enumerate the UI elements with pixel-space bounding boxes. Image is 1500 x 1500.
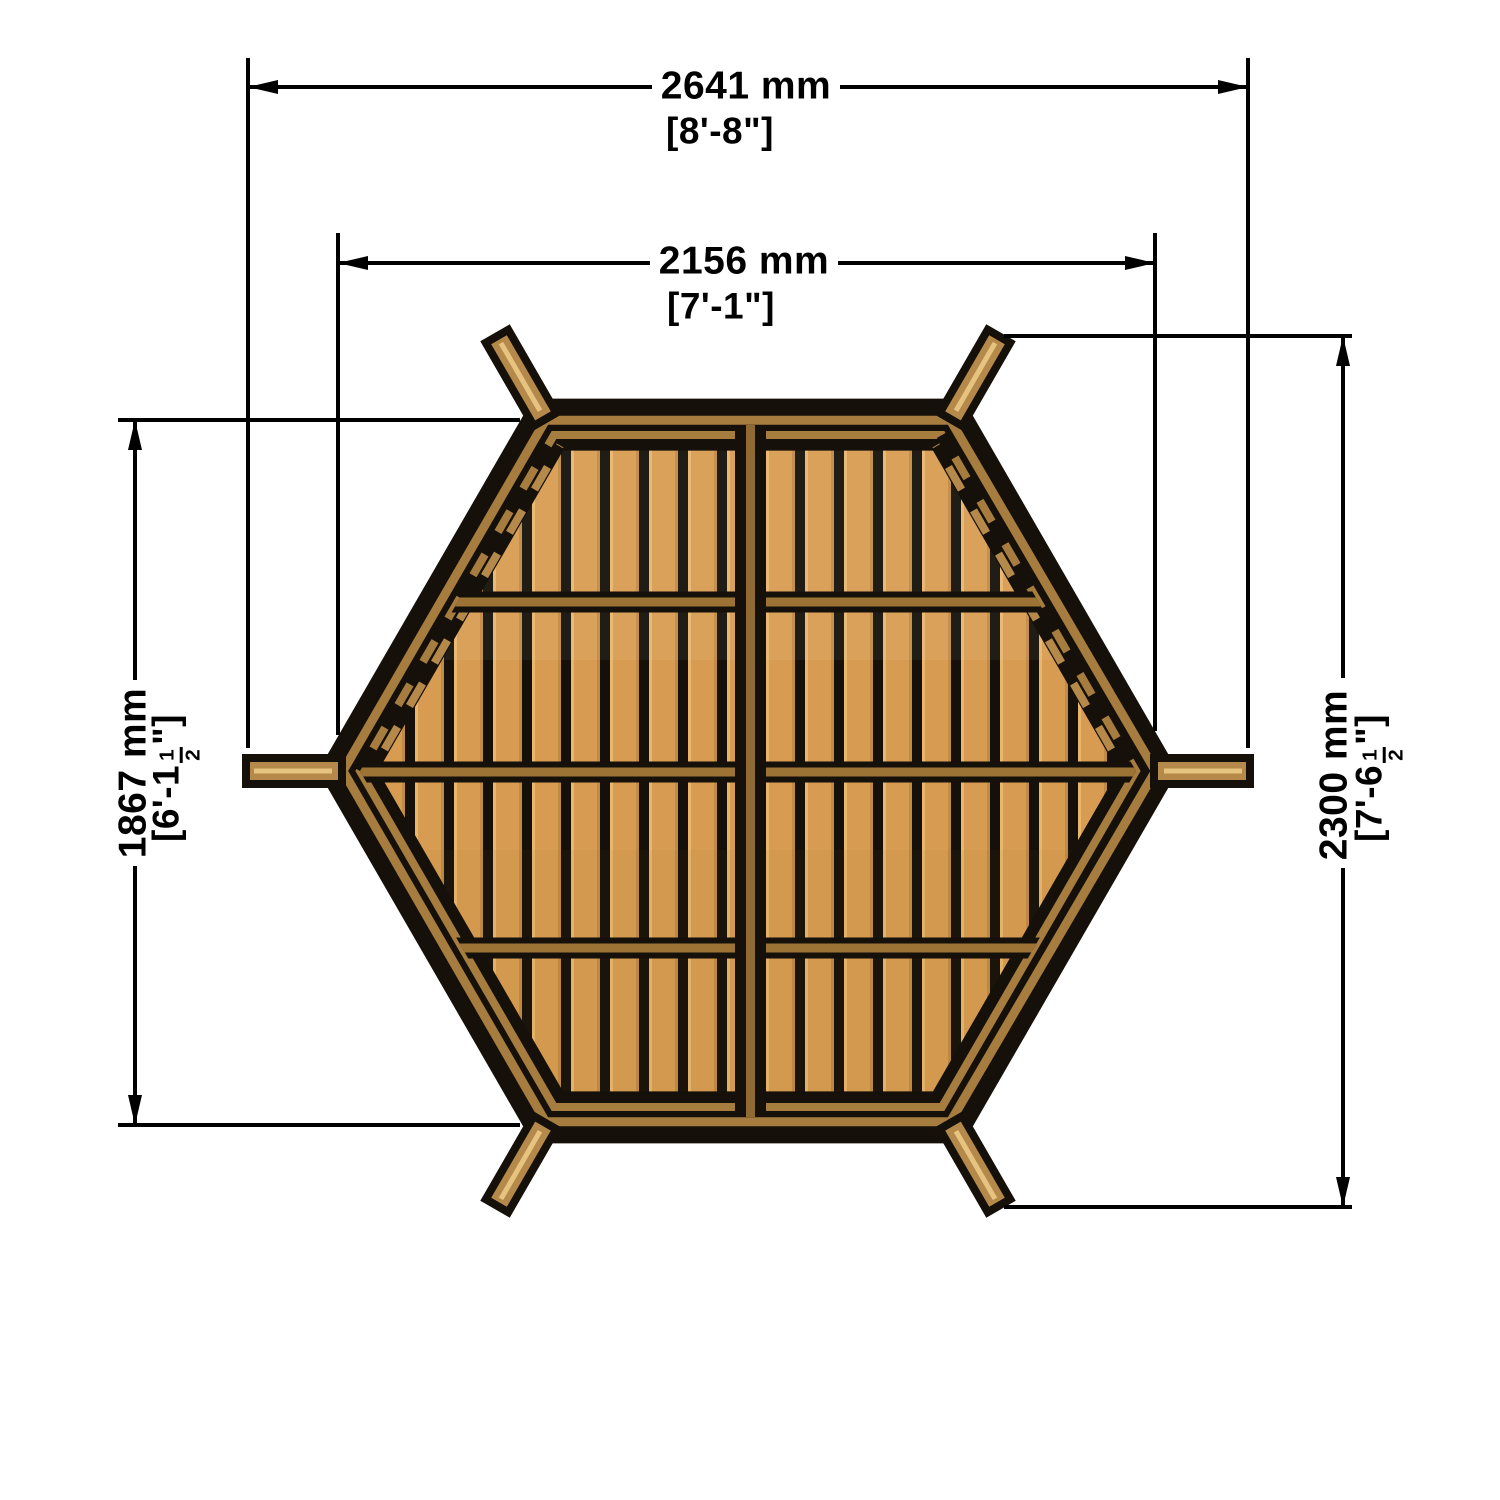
fraction: 12 bbox=[1361, 747, 1407, 763]
arrowhead-top bbox=[1336, 336, 1350, 366]
dim-left-imperial: [6'-112"] bbox=[147, 714, 208, 842]
rafter-top-right bbox=[940, 330, 1011, 426]
imperial-prefix: [7'-6 bbox=[1348, 765, 1389, 842]
imperial-prefix: [6'-1 bbox=[145, 765, 186, 842]
rafter-bottom-left bbox=[486, 1116, 557, 1212]
fraction-denominator: 2 bbox=[1385, 749, 1407, 761]
floor-plan-page: 2641 mm [8'-8"] 2156 mm [7'-1"] 1867 mm … bbox=[0, 0, 1500, 1500]
fraction: 12 bbox=[158, 747, 204, 763]
dim-top-inner-metric: 2156 mm bbox=[659, 242, 829, 281]
arrowhead-bottom bbox=[128, 1095, 142, 1125]
rafter-left bbox=[246, 758, 342, 784]
hexagon-structure bbox=[246, 330, 1250, 1212]
floor-plan-drawing bbox=[0, 0, 1500, 1500]
arrowhead-left bbox=[248, 80, 278, 94]
dim-right-imperial: [7'-612"] bbox=[1350, 714, 1411, 842]
imperial-suffix: "] bbox=[1348, 714, 1389, 745]
arrowhead-top bbox=[128, 420, 142, 450]
rafter-right bbox=[1154, 758, 1250, 784]
dim-top-outer-metric: 2641 mm bbox=[661, 67, 831, 106]
dim-top-outer-imperial: [8'-8"] bbox=[666, 113, 774, 150]
center-beam bbox=[735, 425, 766, 1117]
arrowhead-right bbox=[1218, 80, 1248, 94]
imperial-suffix: "] bbox=[145, 714, 186, 745]
dim-top-inner-imperial: [7'-1"] bbox=[667, 288, 775, 325]
fraction-denominator: 2 bbox=[182, 749, 204, 761]
fraction-numerator: 1 bbox=[1361, 747, 1386, 763]
arrowhead-right bbox=[1125, 256, 1155, 270]
rafter-bottom-right bbox=[940, 1116, 1011, 1212]
rafter-top-left bbox=[486, 330, 557, 426]
fraction-numerator: 1 bbox=[158, 747, 183, 763]
arrowhead-left bbox=[338, 256, 368, 270]
arrowhead-bottom bbox=[1336, 1177, 1350, 1207]
